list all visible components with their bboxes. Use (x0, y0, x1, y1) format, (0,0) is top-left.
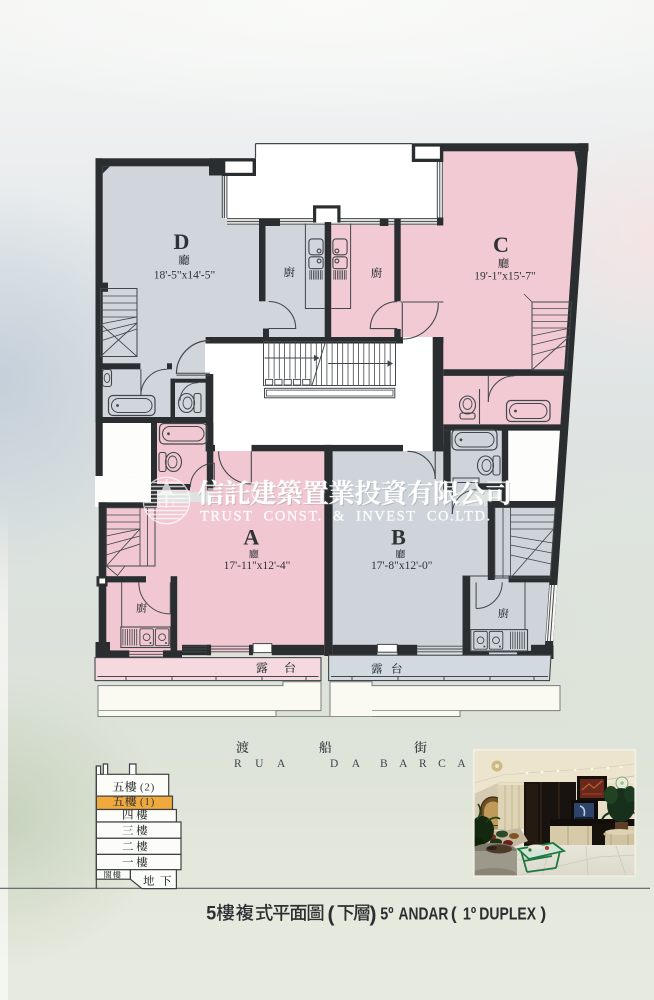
svg-text:A: A (243, 524, 259, 549)
svg-text:A.T.T.: A.T.T. (156, 499, 178, 509)
svg-text:RUA: RUA (234, 758, 299, 770)
svg-text:ANDAR: ANDAR (399, 905, 449, 924)
svg-text:): ) (540, 903, 546, 923)
svg-text:(: ( (328, 903, 335, 926)
svg-text:17'-8"x12'-0": 17'-8"x12'-0" (371, 560, 432, 572)
svg-text:(1): (1) (140, 797, 155, 808)
svg-text:19'-1"x15'-7": 19'-1"x15'-7" (474, 271, 535, 283)
svg-text:BARCA: BARCA (380, 758, 477, 770)
svg-text:DUPLEX: DUPLEX (479, 905, 536, 924)
svg-text:TRUST CONST. & INVEST CO.L: TRUST CONST. & INVEST CO.LTD. (200, 509, 492, 525)
svg-text:17'-11"x12'-4": 17'-11"x12'-4" (224, 560, 291, 572)
svg-text:18'-5"x14'-5": 18'-5"x14'-5" (154, 269, 215, 281)
svg-text:5: 5 (206, 902, 216, 924)
svg-text:DA: DA (330, 758, 374, 770)
svg-text:(2): (2) (140, 783, 155, 794)
svg-text:D: D (174, 229, 190, 254)
svg-text:1º: 1º (463, 905, 476, 924)
svg-text:): ) (370, 903, 377, 926)
svg-text:B: B (391, 524, 406, 549)
svg-text:(: ( (451, 903, 457, 923)
svg-text:5º: 5º (380, 905, 393, 924)
svg-text:C: C (493, 232, 509, 257)
